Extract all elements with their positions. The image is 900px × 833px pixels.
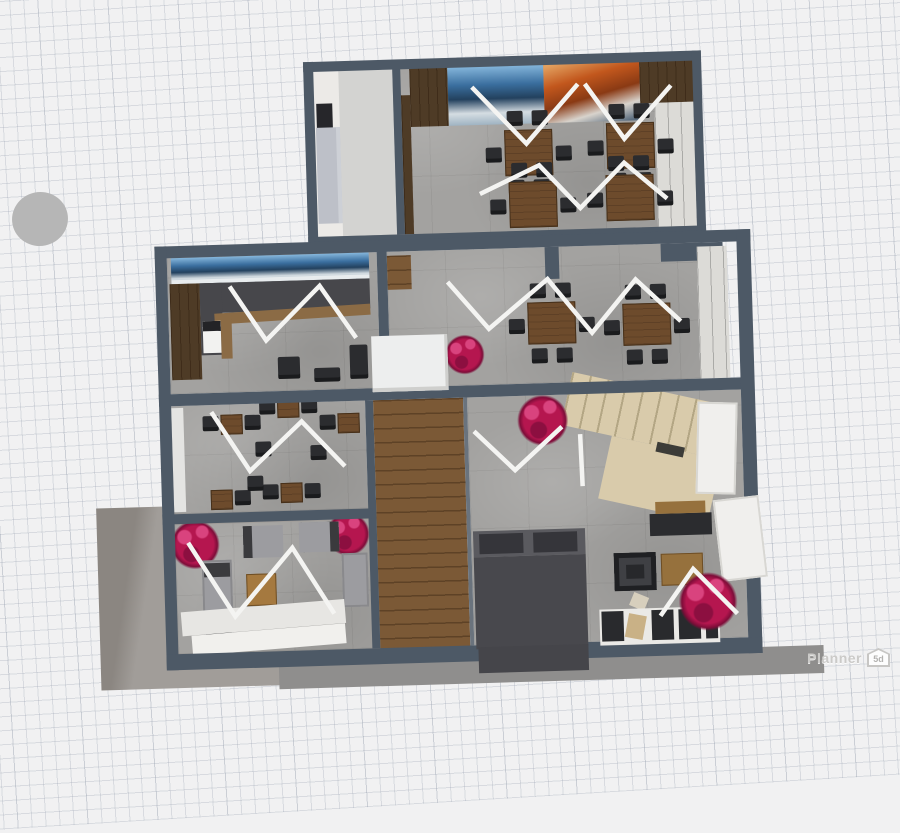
chair[interactable] — [657, 139, 673, 154]
window-wall — [654, 102, 697, 227]
chair[interactable] — [650, 284, 666, 299]
chair[interactable] — [556, 146, 572, 161]
chair[interactable] — [486, 148, 502, 163]
chair[interactable] — [530, 283, 546, 298]
lounge-armchair[interactable] — [299, 521, 340, 552]
sofa-cushion — [601, 611, 624, 642]
chair[interactable] — [674, 318, 690, 333]
chair[interactable] — [314, 367, 340, 382]
cafe-table-set[interactable] — [211, 490, 234, 511]
chair[interactable] — [536, 162, 552, 177]
dining-table[interactable] — [509, 181, 558, 228]
bench-wood-top — [655, 500, 705, 513]
chair[interactable] — [244, 415, 260, 430]
sofa-cushion — [204, 563, 230, 578]
wood-wall-strip — [169, 283, 202, 380]
wall-stub — [545, 247, 560, 279]
lower-wing-block — [154, 229, 762, 670]
chair[interactable] — [633, 103, 649, 118]
lounge-sofa[interactable] — [342, 553, 370, 608]
chair[interactable] — [657, 191, 673, 206]
chair[interactable] — [587, 193, 603, 208]
cafe-table[interactable] — [220, 414, 243, 435]
cafe-table-set[interactable] — [220, 414, 243, 435]
watermark-badge-text: 5d — [869, 650, 888, 665]
dining-table-set[interactable] — [527, 301, 576, 344]
chair[interactable] — [262, 484, 278, 499]
coffee-machine[interactable] — [203, 321, 222, 354]
open-door[interactable] — [696, 402, 738, 495]
bar-counter-trim — [220, 314, 232, 358]
chair[interactable] — [310, 445, 326, 460]
chair[interactable] — [587, 141, 603, 156]
cafe-table[interactable] — [337, 413, 360, 434]
cafe-table[interactable] — [280, 482, 303, 503]
bed-pillow — [533, 531, 578, 552]
chair[interactable] — [608, 104, 624, 119]
mountain-mural-blue[interactable] — [447, 64, 545, 126]
chair[interactable] — [608, 156, 624, 171]
cafe-table[interactable] — [211, 490, 234, 511]
mural-wood-panel-right[interactable] — [639, 60, 694, 104]
planner5d-logo-icon: 5d — [867, 648, 890, 667]
floorplan-canvas[interactable] — [111, 40, 789, 689]
chair[interactable] — [633, 155, 649, 170]
chair[interactable] — [304, 483, 320, 498]
coffee-table[interactable] — [246, 573, 277, 606]
mural-wood-panel-left[interactable] — [409, 67, 449, 127]
dining-table[interactable] — [527, 301, 576, 344]
chair[interactable] — [557, 347, 573, 362]
chair[interactable] — [235, 490, 251, 505]
planner5d-watermark: Planner 5d — [807, 648, 890, 667]
chair[interactable] — [278, 356, 301, 379]
bed[interactable] — [473, 528, 588, 649]
lobby-counter[interactable] — [316, 127, 343, 224]
sofa-cushion — [651, 609, 674, 640]
throw-pillow — [625, 613, 647, 640]
dining-hall-block — [303, 50, 706, 246]
dining-table-set[interactable] — [509, 181, 558, 228]
bed-pillow — [479, 533, 524, 554]
window-wall — [697, 246, 731, 379]
open-door-panel[interactable] — [387, 255, 412, 290]
dining-table-set[interactable] — [622, 302, 671, 345]
chair[interactable] — [555, 282, 571, 297]
chair[interactable] — [532, 348, 548, 363]
wood-corridor — [373, 398, 471, 663]
chair[interactable] — [511, 163, 527, 178]
service-box[interactable] — [371, 334, 449, 392]
watermark-brand-text: Planner — [807, 650, 862, 666]
dining-table[interactable] — [622, 302, 671, 345]
bed-overhang — [478, 644, 589, 673]
dining-table-set[interactable] — [605, 174, 654, 221]
chair[interactable] — [652, 349, 668, 364]
armchair[interactable] — [614, 552, 657, 591]
dining-table[interactable] — [605, 174, 654, 221]
chair[interactable] — [506, 111, 522, 126]
chair[interactable] — [579, 317, 595, 332]
cafe-table-set[interactable] — [280, 482, 303, 503]
mountain-mural-orange[interactable] — [543, 61, 641, 123]
chair[interactable] — [202, 416, 218, 431]
chair[interactable] — [625, 284, 641, 299]
chair[interactable] — [604, 320, 620, 335]
lounge-armchair[interactable] — [243, 525, 284, 558]
bed-duvet — [474, 554, 589, 649]
cafe-table-set[interactable] — [337, 413, 360, 434]
chair[interactable] — [531, 110, 547, 125]
chair[interactable] — [560, 198, 576, 213]
chair[interactable] — [627, 349, 643, 364]
chair[interactable] — [255, 441, 271, 456]
chair[interactable] — [319, 414, 335, 429]
bench[interactable] — [650, 512, 713, 536]
chair[interactable] — [349, 344, 368, 379]
chair[interactable] — [509, 319, 525, 334]
chair[interactable] — [490, 200, 506, 215]
open-door[interactable] — [713, 495, 768, 582]
chair[interactable] — [247, 476, 263, 491]
